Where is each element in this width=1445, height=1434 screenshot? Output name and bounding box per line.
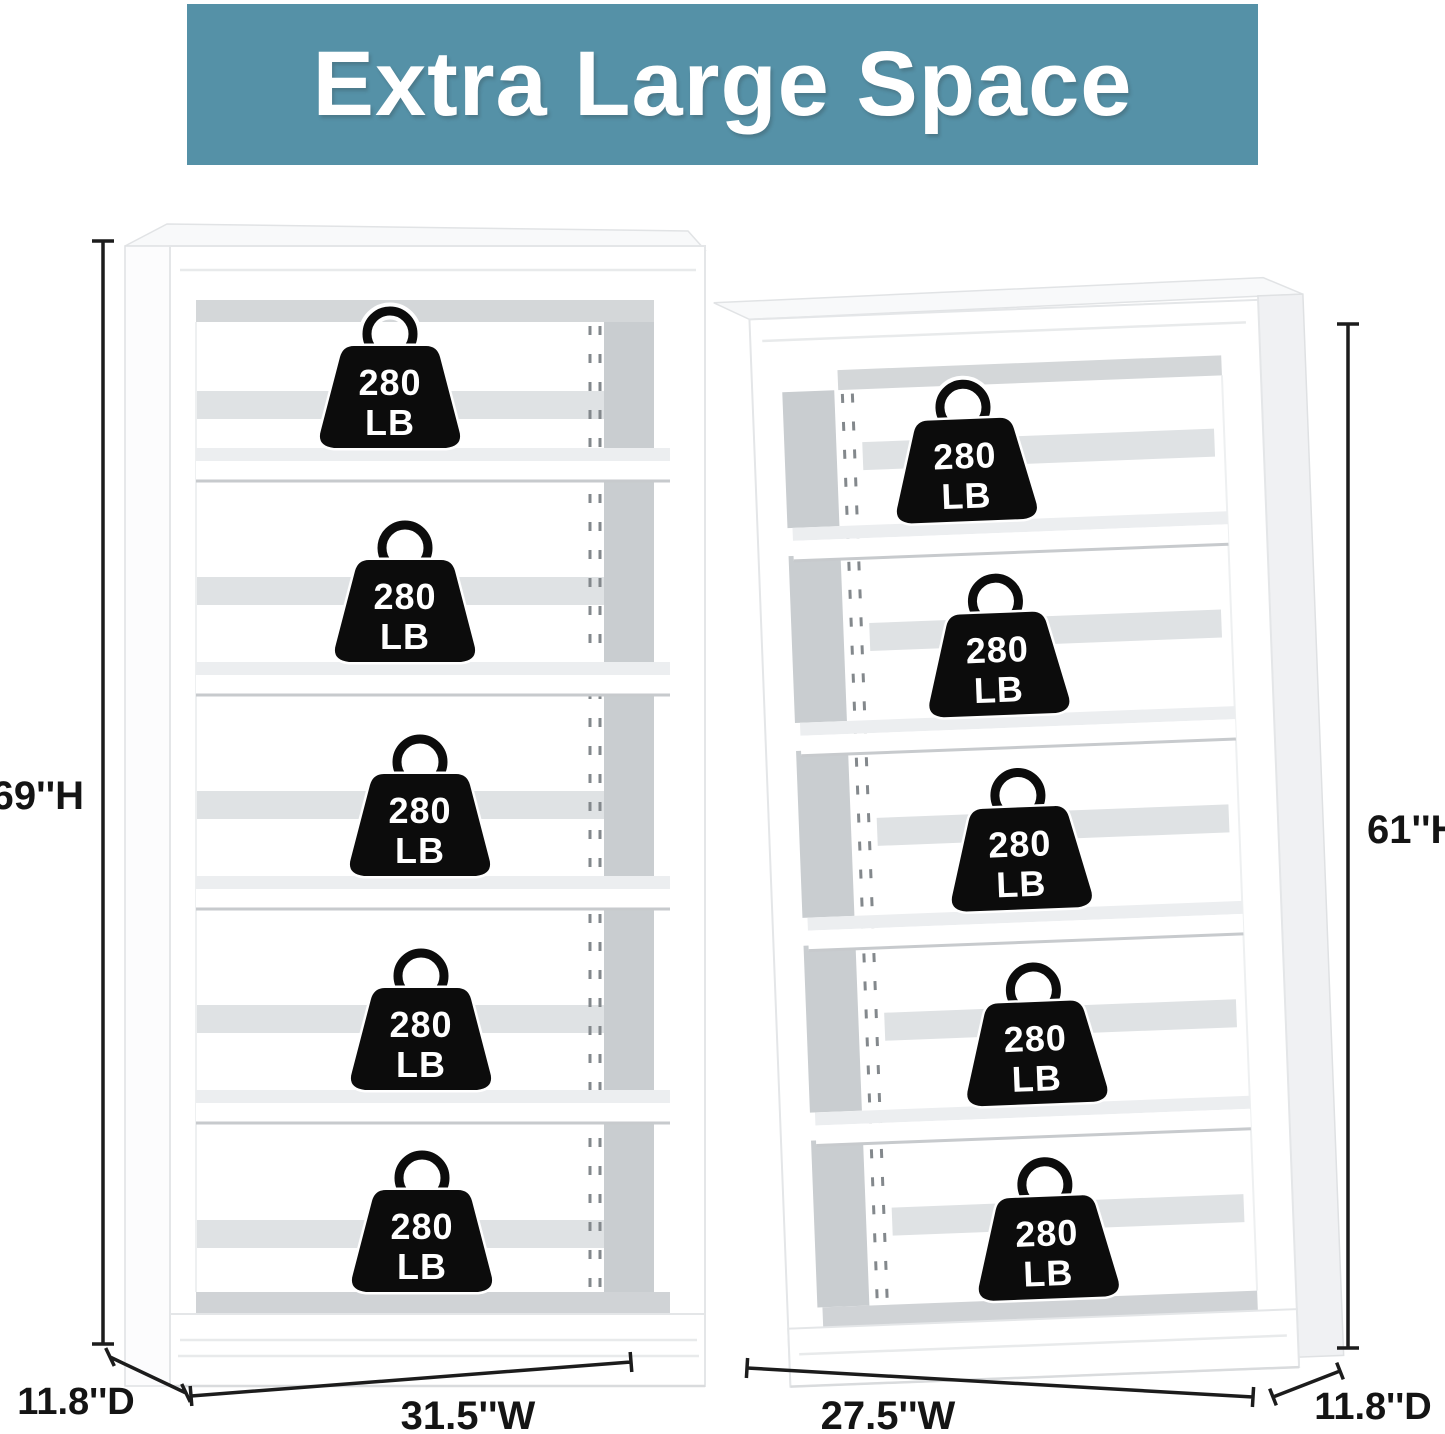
shelf-board: [196, 876, 670, 909]
right-width-label: 27.5''W: [821, 1394, 956, 1434]
right-height-label: 61''H: [1367, 808, 1445, 852]
interior-panel: [604, 694, 654, 876]
shelf-board: [196, 1090, 670, 1123]
interior-panel: [604, 322, 654, 448]
bookshelf-left: [125, 224, 705, 1386]
top-rail-underside: [196, 300, 654, 322]
shelf-board: [196, 662, 670, 695]
bookshelf-right: [714, 276, 1344, 1388]
side-panel: [125, 246, 170, 1386]
left-height-label: 69''H: [0, 774, 84, 818]
interior-panel: [604, 908, 654, 1090]
left-depth-label: 11.8''D: [17, 1381, 134, 1423]
interior-panel: [811, 1139, 869, 1308]
interior-panel: [782, 390, 839, 528]
interior-panel: [789, 554, 847, 723]
product-infographic: Extra Large Space 280 LB: [0, 0, 1445, 1434]
interior-panel: [796, 749, 854, 918]
base: [170, 1292, 705, 1386]
height-dimension-line: [92, 241, 114, 1344]
left-width-label: 31.5''W: [401, 1394, 536, 1434]
height-dimension-line: [1337, 324, 1359, 1348]
shelves-illustration: 280 LB: [0, 0, 1445, 1434]
interior-panel: [804, 944, 862, 1113]
shelf-board: [196, 448, 670, 481]
right-depth-label: 11.8''D: [1314, 1386, 1431, 1428]
interior-panel: [604, 480, 654, 662]
interior-panel: [604, 1122, 654, 1292]
